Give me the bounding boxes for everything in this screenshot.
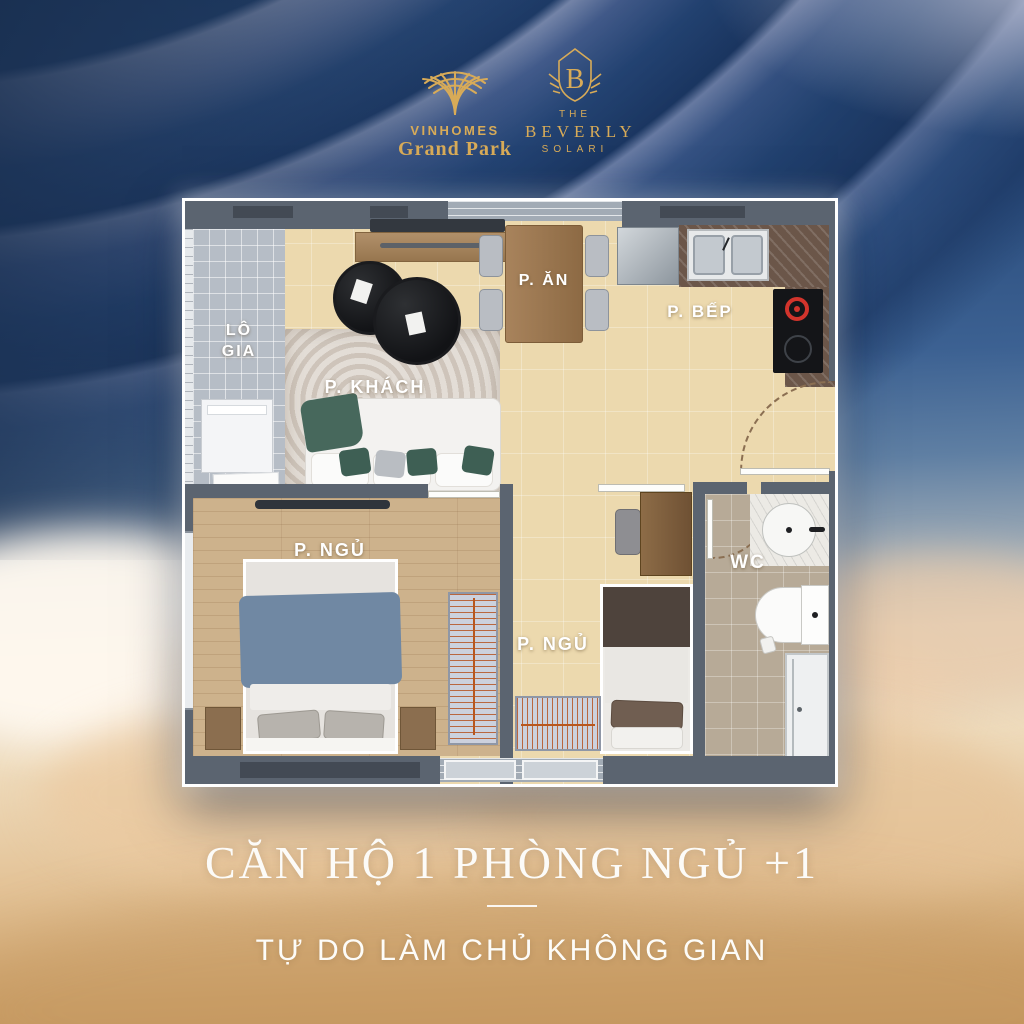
dining-chair bbox=[479, 289, 503, 331]
single-bed bbox=[600, 584, 693, 754]
room-label-logia: LÔ GIA bbox=[193, 321, 285, 363]
bed-blanket-blue bbox=[239, 592, 402, 688]
ac-ledge bbox=[240, 762, 420, 778]
bed-pillow-white bbox=[611, 727, 683, 749]
shower-handle bbox=[797, 707, 802, 712]
sink-basin bbox=[731, 235, 763, 275]
desk-chair bbox=[615, 509, 641, 555]
beverly-the: THE bbox=[525, 109, 625, 120]
title-divider bbox=[487, 905, 537, 907]
wall-right bbox=[829, 471, 835, 784]
nightstand bbox=[205, 707, 241, 750]
ac-ledge bbox=[370, 206, 408, 218]
tv-screen bbox=[370, 219, 505, 232]
beverly-subname: SOLARI bbox=[525, 144, 625, 155]
poster-title: CĂN HỘ 1 PHÒNG NGỦ +1 bbox=[0, 836, 1024, 889]
green-throw bbox=[299, 393, 364, 453]
burner-dot-red bbox=[794, 306, 800, 312]
green-pillow bbox=[338, 447, 371, 477]
wardrobe-horizontal bbox=[515, 696, 601, 751]
washing-machine-lid bbox=[207, 405, 267, 415]
vinhomes-tree-icon bbox=[385, 50, 525, 116]
soundbar bbox=[380, 243, 495, 248]
logia-label-line2: GIA bbox=[222, 343, 256, 360]
dining-chair bbox=[479, 235, 503, 277]
toilet-bowl bbox=[755, 587, 807, 643]
beverly-monogram: B bbox=[566, 64, 585, 95]
wall-wc-left bbox=[693, 482, 705, 784]
loggia-railing bbox=[185, 229, 193, 486]
bedroom-tv bbox=[255, 500, 390, 509]
room-label-dining: P. ĂN bbox=[505, 271, 583, 292]
beverly-name: BEVERLY bbox=[525, 122, 625, 142]
burner-ring-dark-icon bbox=[784, 335, 812, 363]
floor-plan: LÔ GIA P. KHÁCH P. ĂN bbox=[182, 198, 838, 787]
window-bedroom bbox=[185, 531, 193, 710]
poster-canvas: VINHOMES Grand Park B THE BEVERLY SOLARI bbox=[0, 0, 1024, 1024]
bed-blanket-brown bbox=[603, 587, 690, 647]
desk-cabinet bbox=[640, 492, 692, 576]
window-bottom bbox=[522, 760, 598, 780]
beverly-crest-icon: B bbox=[525, 46, 625, 106]
poster-subtitle: TỰ DO LÀM CHỦ KHÔNG GIAN bbox=[0, 934, 1024, 968]
dining-chair bbox=[585, 235, 609, 277]
wall-bottom-right bbox=[603, 756, 835, 784]
wall-middle bbox=[185, 484, 428, 498]
wc-sink-faucet bbox=[809, 527, 825, 532]
logia-label-line1: LÔ bbox=[226, 322, 252, 339]
room-label-living: P. KHÁCH bbox=[295, 376, 455, 399]
toilet-button bbox=[812, 612, 818, 618]
vinhomes-logo: VINHOMES Grand Park bbox=[385, 50, 525, 161]
gray-pillow bbox=[374, 450, 407, 479]
bedroom-door-leaf bbox=[428, 491, 500, 498]
shower-door bbox=[792, 659, 794, 765]
vinhomes-name: VINHOMES bbox=[385, 123, 525, 138]
bed-sheet bbox=[250, 684, 391, 710]
window-top bbox=[448, 201, 622, 221]
dining-chair bbox=[585, 289, 609, 331]
bed-sheet bbox=[605, 647, 688, 703]
bed-pillow-brown bbox=[611, 700, 684, 730]
entry-door-leaf bbox=[740, 468, 830, 475]
green-pillow bbox=[461, 445, 495, 476]
room-label-wc: WC bbox=[705, 551, 791, 576]
sink-basin bbox=[693, 235, 725, 275]
shower bbox=[785, 653, 829, 771]
wardrobe-rail bbox=[473, 598, 475, 735]
beverly-logo: B THE BEVERLY SOLARI bbox=[525, 46, 625, 155]
bedroom-plus-sill bbox=[598, 484, 685, 492]
green-pillow bbox=[406, 448, 438, 477]
double-bed bbox=[243, 559, 398, 754]
entry-door-arc bbox=[740, 381, 830, 471]
wall-wc-top bbox=[705, 482, 747, 494]
room-label-kitchen: P. BẾP bbox=[640, 301, 760, 323]
nightstand bbox=[400, 707, 436, 750]
window-bottom bbox=[444, 760, 516, 780]
bed-headboard bbox=[246, 738, 395, 751]
ac-ledge bbox=[660, 206, 745, 218]
wall-right bbox=[829, 201, 835, 381]
wall-wc-top bbox=[761, 482, 835, 494]
wc-sink-drain bbox=[786, 527, 792, 533]
ac-ledge bbox=[233, 206, 293, 218]
vinhomes-subname: Grand Park bbox=[385, 138, 525, 161]
fridge bbox=[617, 227, 679, 285]
wardrobe-vertical bbox=[448, 592, 498, 745]
wardrobe-rail bbox=[521, 724, 595, 726]
